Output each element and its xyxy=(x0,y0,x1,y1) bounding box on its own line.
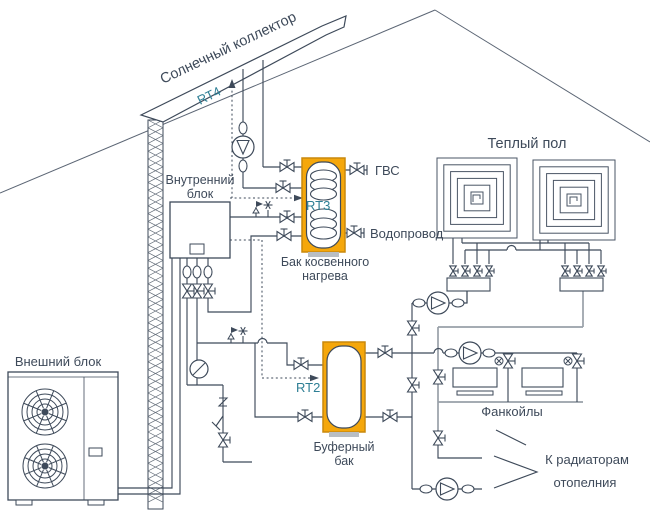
pump-icon xyxy=(459,342,481,364)
safety-valve-icon xyxy=(253,201,263,217)
valve-icon xyxy=(462,266,470,276)
sensor-rt2-label: RT2 xyxy=(296,380,320,395)
union-icon xyxy=(193,266,201,278)
valve-icon xyxy=(280,211,294,223)
buffer-tank-label-line2: бак xyxy=(334,454,354,468)
indirect-tank-label-line2: нагрева xyxy=(302,269,348,283)
fittings-layer xyxy=(183,122,607,500)
manifold-right xyxy=(560,278,603,291)
valve-icon xyxy=(204,284,216,298)
outdoor-unit xyxy=(8,372,118,505)
valve-icon xyxy=(574,266,582,276)
indoor-unit-label-line1: Внутренний xyxy=(166,173,235,187)
indirect-tank-label-line1: Бак косвенного xyxy=(281,255,369,269)
union-icon xyxy=(452,299,464,307)
buffer-tank-label-line1: Буферный xyxy=(313,440,374,454)
manifold-left xyxy=(447,278,490,291)
radiators-label-line2: отопелния xyxy=(554,475,617,490)
indoor-unit-label-line2: блок xyxy=(187,187,214,201)
schematic-canvas: Солнечный коллектор RT4 Внутренний блок … xyxy=(0,0,650,526)
dhw-label: ГВС xyxy=(375,163,400,178)
drain-cock-icon xyxy=(495,357,503,365)
air-vent-icon xyxy=(239,327,248,343)
floor-manifolds xyxy=(447,278,603,291)
union-icon xyxy=(445,349,457,357)
fan-coil-1 xyxy=(453,368,497,387)
valve-icon xyxy=(434,431,446,445)
valve-icon xyxy=(450,266,458,276)
floor-loop-spiral xyxy=(533,160,615,240)
valve-icon xyxy=(434,370,446,384)
air-vent-icon xyxy=(264,201,273,217)
buffer-tank xyxy=(323,342,365,437)
valve-icon xyxy=(474,266,482,276)
valve-icon xyxy=(294,358,308,370)
indoor-unit-display xyxy=(190,244,204,254)
union-icon xyxy=(239,122,247,134)
tank-base xyxy=(329,432,359,437)
gauge-icon xyxy=(190,360,208,378)
indoor-unit xyxy=(170,202,230,258)
valve-icon xyxy=(280,160,294,172)
valve-icon xyxy=(383,410,397,422)
fan-coils-label: Фанкойлы xyxy=(481,404,543,419)
valve-icon xyxy=(378,346,392,358)
drain-cock-icon xyxy=(564,357,572,365)
valve-icon xyxy=(598,266,606,276)
valve-icon xyxy=(504,354,516,368)
valve-icon xyxy=(350,163,364,175)
valve-icon xyxy=(277,229,291,241)
radiators-label-line1: К радиаторам xyxy=(545,452,629,467)
union-icon xyxy=(420,485,432,493)
union-icon xyxy=(204,266,212,278)
valve-icon xyxy=(298,410,312,422)
union-icon xyxy=(183,266,191,278)
valve-icon xyxy=(408,378,420,392)
valve-icon xyxy=(347,226,361,238)
union-icon xyxy=(413,299,425,307)
pump-icon xyxy=(436,478,458,500)
warm-floor-label: Теплый пол xyxy=(487,136,566,152)
fan-coil-2 xyxy=(522,368,563,387)
valve-icon xyxy=(486,266,494,276)
pump-icon xyxy=(232,136,254,158)
floor-loop-spiral xyxy=(437,158,517,238)
valve-icon xyxy=(408,321,420,335)
union-icon xyxy=(239,160,247,172)
valve-icon xyxy=(562,266,570,276)
floor-heating-loops xyxy=(437,158,615,240)
heating-system-schematic: Солнечный коллектор RT4 Внутренний блок … xyxy=(0,0,650,526)
water-supply-label: Водопровод xyxy=(370,226,444,241)
union-icon xyxy=(483,349,495,357)
sensor-rt3-label: RT3 xyxy=(306,198,330,213)
valve-icon xyxy=(586,266,594,276)
pump-icon xyxy=(427,292,449,314)
house-wall-hatched xyxy=(148,120,163,509)
outdoor-unit-label: Внешний блок xyxy=(15,354,102,369)
valve-icon xyxy=(276,181,290,193)
union-icon xyxy=(462,485,474,493)
safety-valve-icon xyxy=(228,327,238,343)
valve-icon xyxy=(183,284,195,298)
valve-icon xyxy=(219,433,231,447)
valve-icon xyxy=(573,354,585,368)
